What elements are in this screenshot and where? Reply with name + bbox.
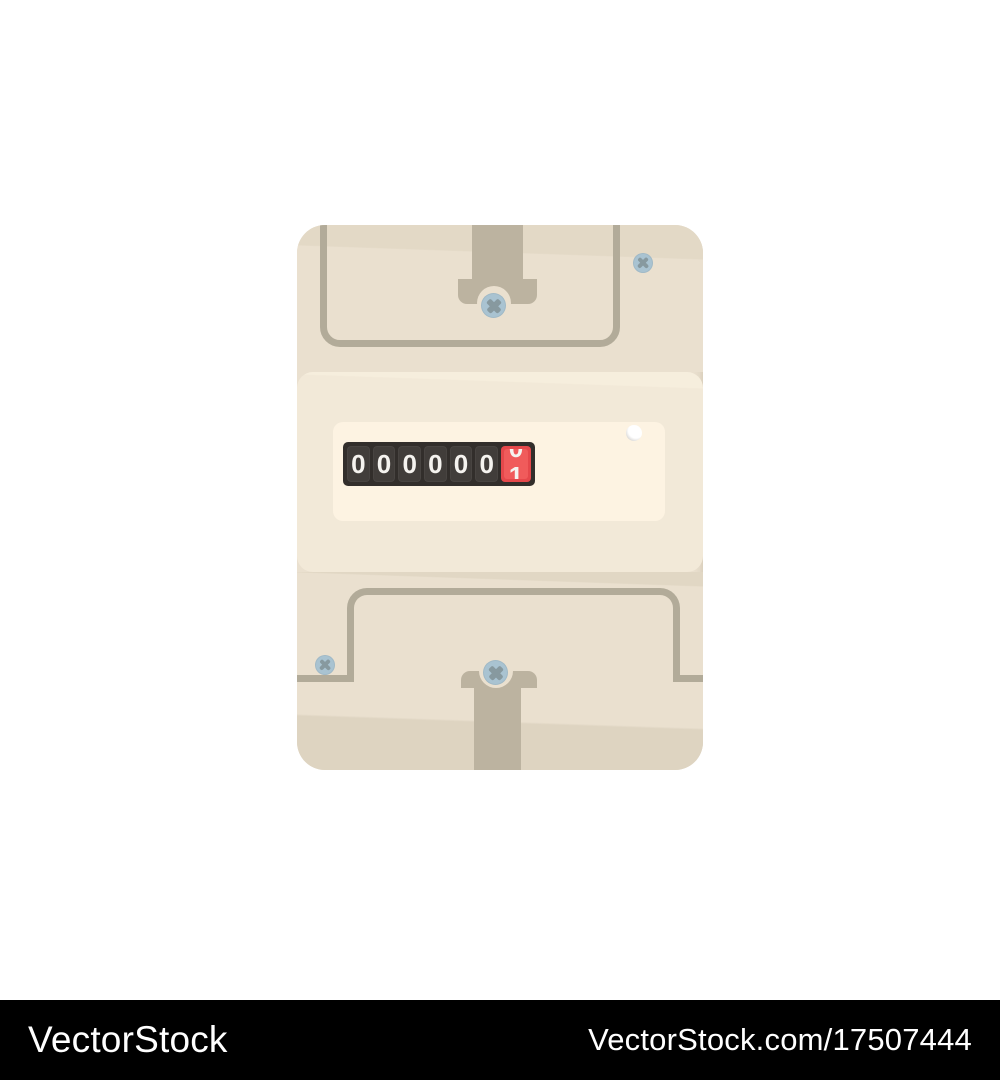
counter-digit: 0 — [475, 446, 498, 482]
bottom-seal-tab — [474, 676, 521, 770]
rolling-digit-stack: 0 1 — [504, 449, 528, 479]
screw-icon — [483, 660, 508, 685]
electricity-meter-illustration: 0 0 0 0 0 0 0 1 — [297, 225, 703, 770]
watermark-brand: VectorStock — [28, 1019, 228, 1061]
screw-icon — [315, 655, 335, 675]
meter-display-panel: 0 0 0 0 0 0 0 1 — [333, 422, 665, 521]
bottom-cover-seam — [347, 588, 680, 682]
rolling-digit-window: 0 1 — [504, 449, 528, 479]
meter-bottom-cover — [297, 572, 703, 770]
watermark-url: VectorStock.com/17507444 — [588, 1022, 972, 1058]
top-seal-tab — [472, 225, 523, 282]
counter-register: 0 0 0 0 0 0 0 1 — [343, 442, 535, 486]
screw-icon — [481, 293, 506, 318]
meter-face: 0 0 0 0 0 0 0 1 — [297, 372, 703, 572]
counter-digit: 0 — [398, 446, 421, 482]
bottom-seam-right-stub — [673, 675, 703, 682]
bottom-seam-left-stub — [297, 675, 354, 682]
counter-digit: 0 — [373, 446, 396, 482]
stock-image-preview: 0 0 0 0 0 0 0 1 — [0, 0, 1000, 1080]
counter-rolling-digit: 0 1 — [501, 446, 531, 482]
counter-digit: 0 — [450, 446, 473, 482]
rolling-digit-to: 1 — [504, 462, 528, 479]
screw-icon — [633, 253, 653, 273]
watermark-bar: VectorStock VectorStock.com/17507444 — [0, 1000, 1000, 1080]
meter-top-cover — [297, 225, 703, 372]
counter-digit: 0 — [424, 446, 447, 482]
counter-digit: 0 — [347, 446, 370, 482]
indicator-dot-icon — [626, 425, 642, 441]
